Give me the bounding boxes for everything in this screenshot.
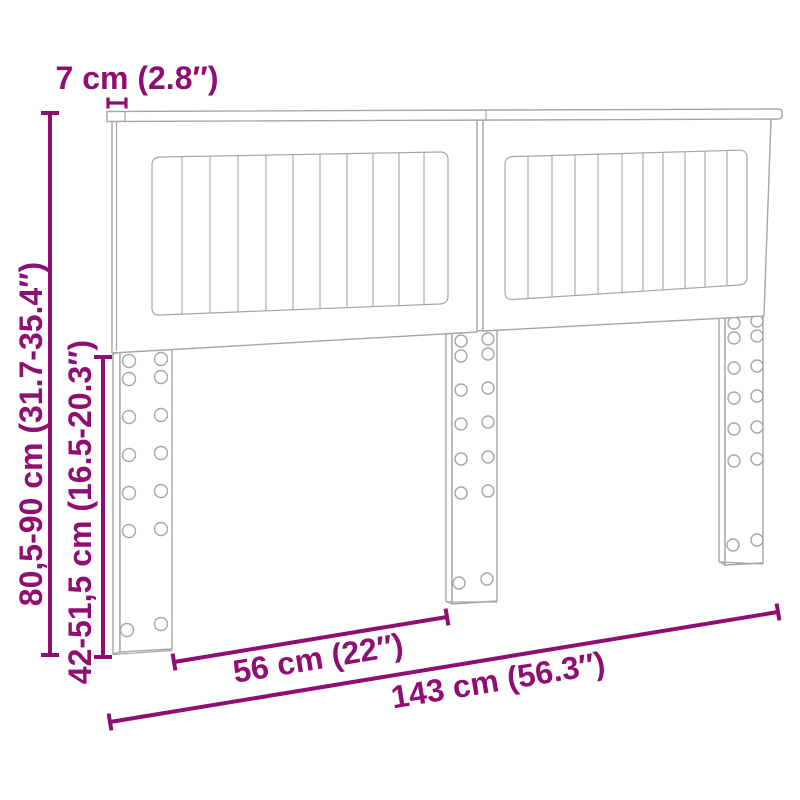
right-leg bbox=[719, 314, 763, 565]
left-leg bbox=[113, 349, 172, 655]
headboard-dimension-diagram: 7 cm (2.8″) 80,5-90 cm (31.7-35.4″) 42-5… bbox=[0, 0, 800, 800]
label-leg-distance: 56 cm (22″) bbox=[230, 626, 405, 690]
left-panel bbox=[112, 117, 477, 353]
right-panel bbox=[483, 117, 771, 331]
dimension-leg-height: 42-51,5 cm (16.5-20.3″) bbox=[62, 340, 112, 684]
dimension-top-rail-depth: 7 cm (2.8″) bbox=[56, 60, 219, 109]
label-top-rail-depth: 7 cm (2.8″) bbox=[56, 60, 219, 96]
label-leg-height: 42-51,5 cm (16.5-20.3″) bbox=[62, 340, 98, 684]
middle-leg bbox=[446, 330, 497, 604]
headboard-drawing bbox=[107, 109, 782, 655]
dimension-total-width: 143 cm (56.3″) bbox=[109, 604, 780, 731]
label-total-width: 143 cm (56.3″) bbox=[388, 645, 607, 716]
dimension-diagram-canvas: 7 cm (2.8″) 80,5-90 cm (31.7-35.4″) 42-5… bbox=[0, 0, 800, 800]
label-total-height: 80,5-90 cm (31.7-35.4″) bbox=[13, 262, 49, 606]
dimension-total-height: 80,5-90 cm (31.7-35.4″) bbox=[13, 113, 59, 655]
top-rail bbox=[107, 109, 782, 122]
